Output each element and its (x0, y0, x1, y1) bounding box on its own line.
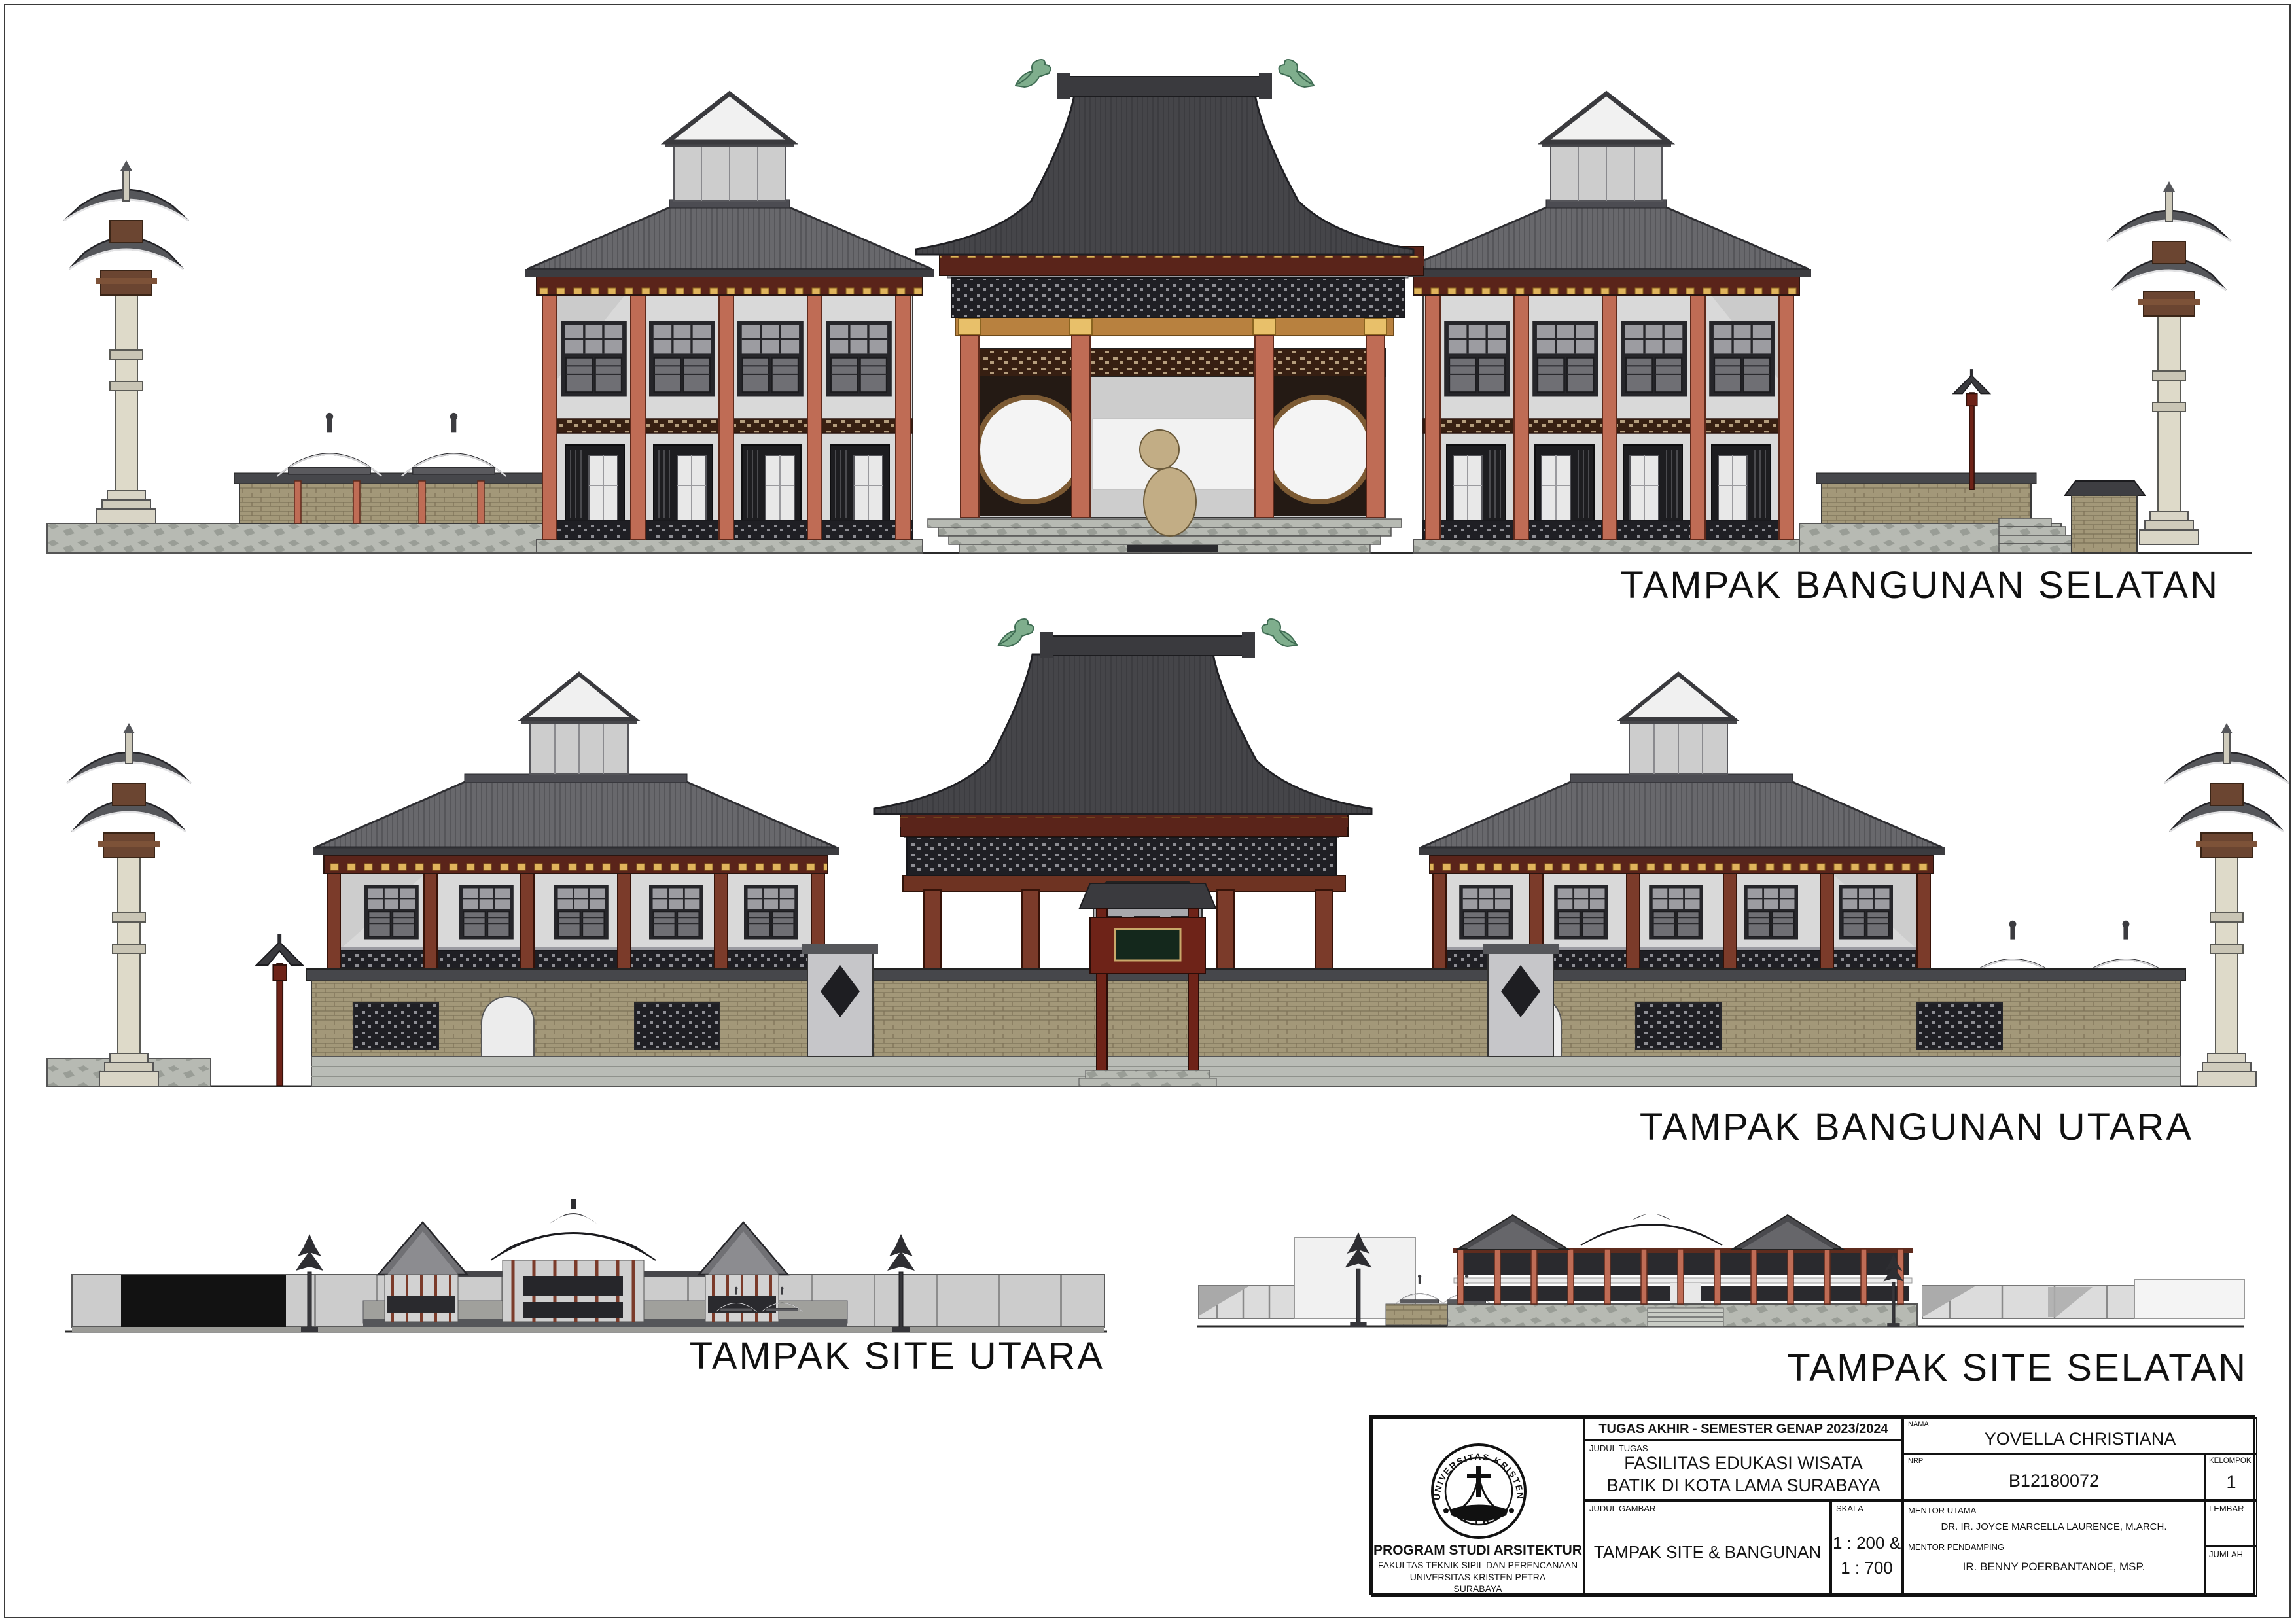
title-block: UNIVERSITAS KRISTEN PETRA PROGRAM STUDI … (1369, 1415, 2255, 1595)
site-utara-left-tower (378, 1222, 467, 1322)
institution-university: UNIVERSITAS KRISTEN PETRA (1373, 1572, 1583, 1582)
skala-value-1: 1 : 200 & (1832, 1533, 1901, 1553)
title-block-mentor-cell: MENTOR UTAMA DR. IR. JOYCE MARCELLA LAUR… (1903, 1500, 2205, 1597)
title-block-judul-tugas-cell: JUDUL TUGAS FASILITAS EDUKASI WISATA BAT… (1584, 1440, 1903, 1500)
title-block-jumlah-cell: JUMLAH (2205, 1546, 2257, 1597)
site-utara-center-tower (491, 1199, 656, 1322)
judul-gambar-label: JUDUL GAMBAR (1589, 1504, 1655, 1513)
judul-gambar-value: TAMPAK SITE & BANGUNAN (1585, 1542, 1829, 1562)
site-selatan-building (1447, 1214, 1917, 1326)
drawing-elevation-site-utara (65, 1199, 1107, 1332)
judul-tugas-line1: FASILITAS EDUKASI WISATA (1585, 1453, 1901, 1474)
title-block-kelompok-cell: KELOMPOK 1 (2205, 1454, 2257, 1500)
title-block-skala-cell: SKALA 1 : 200 & 1 : 700 (1831, 1500, 1903, 1597)
label-tampak-site-utara: TAMPAK SITE UTARA (690, 1334, 1104, 1378)
lembar-label: LEMBAR (2209, 1504, 2244, 1513)
drawing-elevation-site-selatan (1197, 1214, 2244, 1328)
kelompok-value: 1 (2206, 1472, 2256, 1492)
nama-label: NAMA (1908, 1421, 1929, 1428)
mentor-utama-value: DR. IR. JOYCE MARCELLA LAURENCE, M.ARCH. (1904, 1521, 2204, 1532)
label-tampak-bangunan-utara: TAMPAK BANGUNAN UTARA (1640, 1105, 2193, 1149)
mentor-pendamping-label: MENTOR PENDAMPING (1908, 1542, 2004, 1552)
drawing-elevation-bangunan-selatan (46, 60, 2252, 553)
jumlah-label: JUMLAH (2209, 1549, 2243, 1559)
south-gate-tower (916, 60, 1424, 553)
label-tampak-bangunan-selatan: TAMPAK BANGUNAN SELATAN (1620, 563, 2219, 607)
mentor-utama-label: MENTOR UTAMA (1908, 1506, 1976, 1515)
kelompok-label: KELOMPOK (2209, 1457, 2252, 1465)
drawing-elevation-bangunan-utara (46, 619, 2289, 1086)
skala-value-2: 1 : 700 (1832, 1558, 1901, 1578)
nrp-value: B12180072 (1904, 1471, 2204, 1491)
title-block-judul-gambar-cell: JUDUL GAMBAR TAMPAK SITE & BANGUNAN (1584, 1500, 1831, 1597)
judul-tugas-label: JUDUL TUGAS (1589, 1443, 1648, 1453)
nrp-label: NRP (1908, 1457, 1923, 1465)
title-block-header: TUGAS AKHIR - SEMESTER GENAP 2023/2024 (1584, 1417, 1903, 1440)
institution-city: SURABAYA (1373, 1583, 1583, 1594)
title-block-institution-cell: UNIVERSITAS KRISTEN PETRA PROGRAM STUDI … (1371, 1417, 1584, 1597)
site-utara-right-tower (699, 1222, 788, 1322)
university-seal-logo: UNIVERSITAS KRISTEN PETRA (1430, 1442, 1528, 1540)
nama-value: YOVELLA CHRISTIANA (1904, 1429, 2256, 1449)
logo-cross-and-sails (1443, 1466, 1514, 1521)
title-block-lembar-cell: LEMBAR (2205, 1500, 2257, 1546)
institution-program: PROGRAM STUDI ARSITEKTUR (1373, 1543, 1583, 1559)
architectural-sheet: { "elevations": [ {"label": "TAMPAK BANG… (0, 0, 2296, 1624)
skala-label: SKALA (1836, 1504, 1863, 1513)
judul-tugas-line2: BATIK DI KOTA LAMA SURABAYA (1585, 1475, 1901, 1496)
label-tampak-site-selatan: TAMPAK SITE SELATAN (1787, 1346, 2248, 1390)
institution-faculty: FAKULTAS TEKNIK SIPIL DAN PERENCANAAN (1373, 1560, 1583, 1570)
mentor-pendamping-value: IR. BENNY POERBANTANOE, MSP. (1904, 1561, 2204, 1574)
title-block-nama-cell: NAMA YOVELLA CHRISTIANA (1903, 1417, 2257, 1454)
title-block-nrp-cell: NRP B12180072 (1903, 1454, 2205, 1500)
